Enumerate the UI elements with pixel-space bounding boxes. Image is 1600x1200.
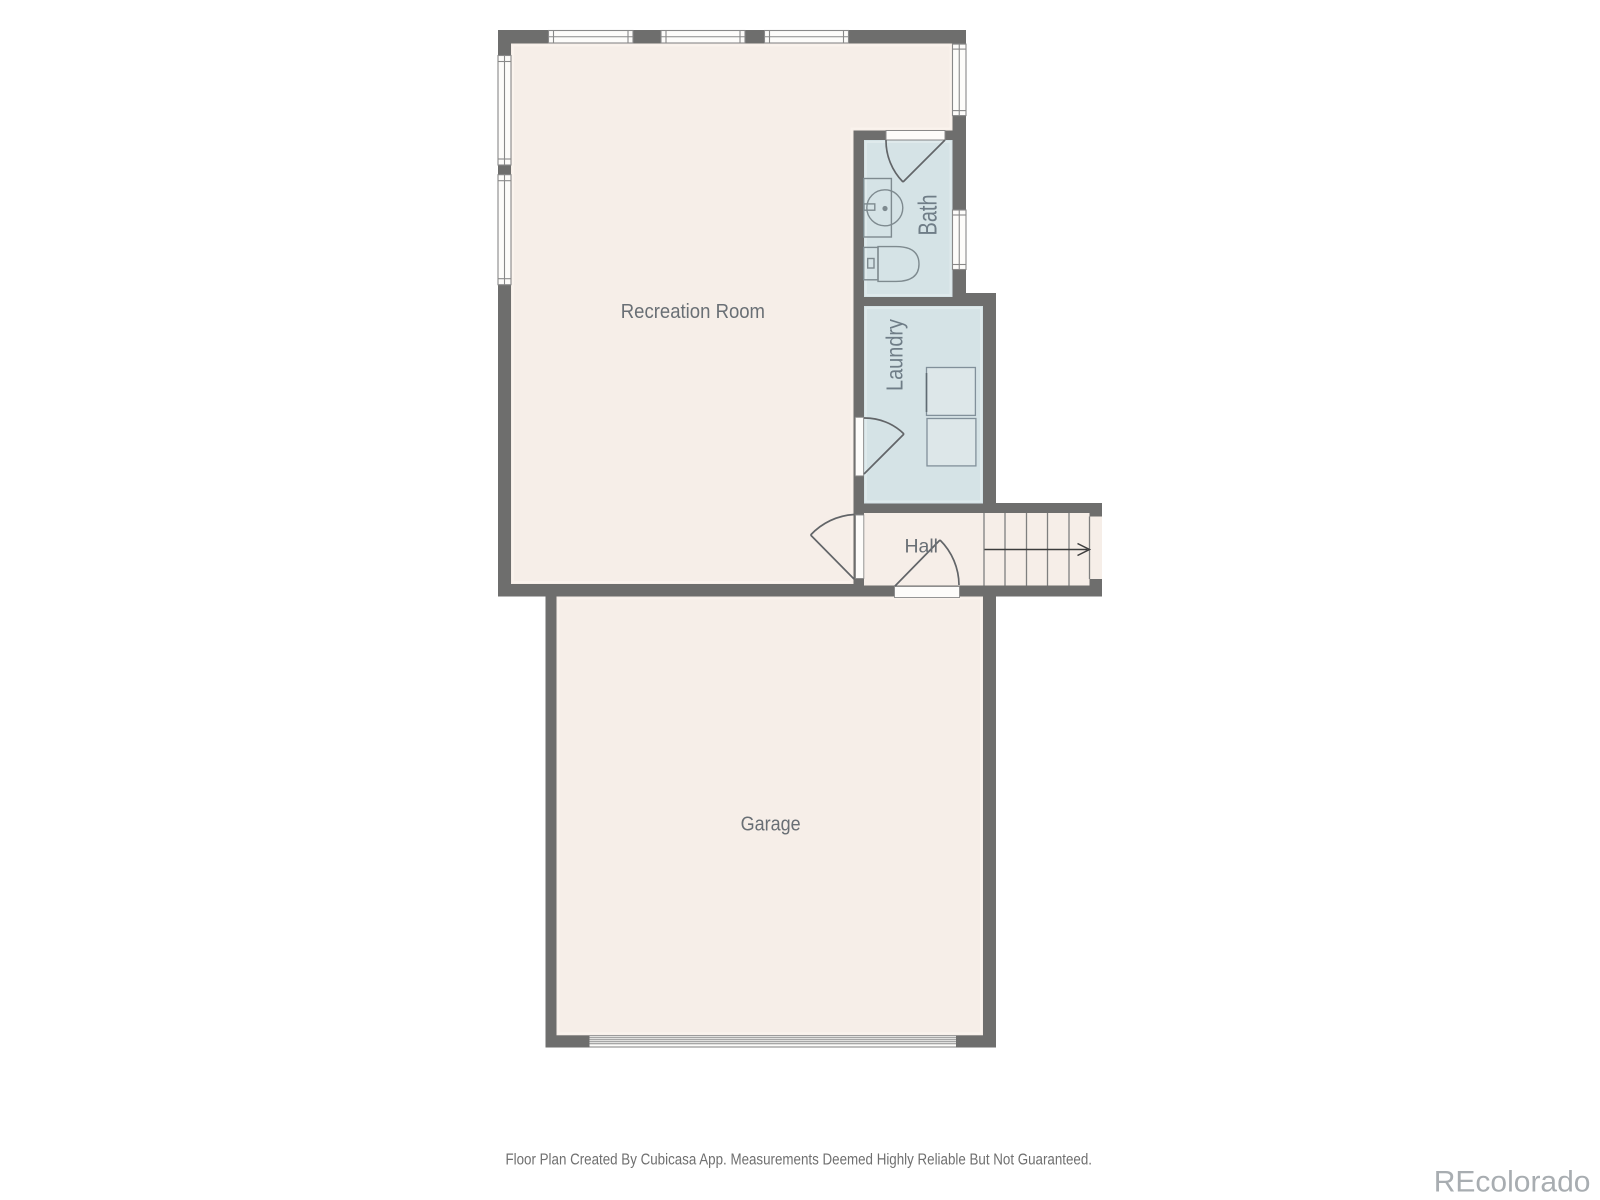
svg-text:Garage: Garage [741,813,801,836]
svg-text:Recreation Room: Recreation Room [621,300,765,323]
svg-text:Laundry: Laundry [882,319,908,391]
svg-text:Hall: Hall [905,536,939,558]
svg-text:Bath: Bath [913,194,943,235]
svg-text:Floor Plan Created By Cubicasa: Floor Plan Created By Cubicasa App. Meas… [506,1152,1093,1169]
svg-text:REcolorado: REcolorado [1434,1166,1591,1199]
